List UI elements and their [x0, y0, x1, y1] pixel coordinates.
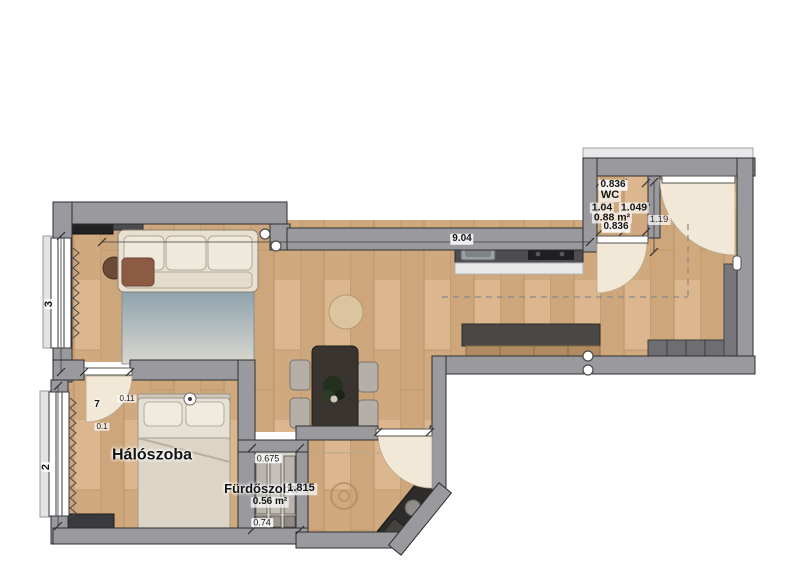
dining-chair [358, 362, 378, 392]
dim-bathroom-width: 1.815 [285, 483, 317, 495]
dining-chair [290, 360, 310, 390]
dim-shaft-width: 0.675 [255, 454, 282, 463]
dim-window-upper: 3 [44, 299, 56, 309]
room-label-wc: WC [599, 190, 621, 202]
dim-hall-width: 1.19 [648, 215, 671, 225]
dim-bedroom-door-h: 0.1 [94, 423, 109, 431]
dim-bedroom-door: 7 [94, 400, 100, 411]
sofa [118, 230, 258, 292]
dim-shaft-depth: 0.74 [251, 518, 273, 527]
room-label-bedroom: Hálószoba [112, 448, 192, 465]
pouf [329, 295, 363, 329]
kitchen-island [462, 324, 600, 346]
floor-plan: Hálószoba Fürdőszoba 1.815 0.56 m² 0.675… [0, 0, 800, 570]
dim-wc-bottom: 0.836 [601, 222, 630, 233]
rug [122, 292, 254, 364]
window-lower [49, 392, 69, 516]
hall-wardrobe [648, 340, 724, 358]
pillow [186, 402, 224, 426]
dining-chair [290, 398, 310, 428]
floor-plan-drawing [0, 0, 800, 570]
pillow [144, 402, 182, 426]
dim-window-lower: 2 [41, 462, 53, 472]
sofa-throw [122, 258, 154, 286]
dim-living-width: 9.04 [450, 234, 473, 245]
dim-shaft-area: 0.56 m² [251, 497, 289, 508]
hall-cabinet [724, 264, 737, 358]
dim-bedroom-door-w: 0.11 [118, 395, 137, 403]
wall-vent [733, 256, 741, 270]
